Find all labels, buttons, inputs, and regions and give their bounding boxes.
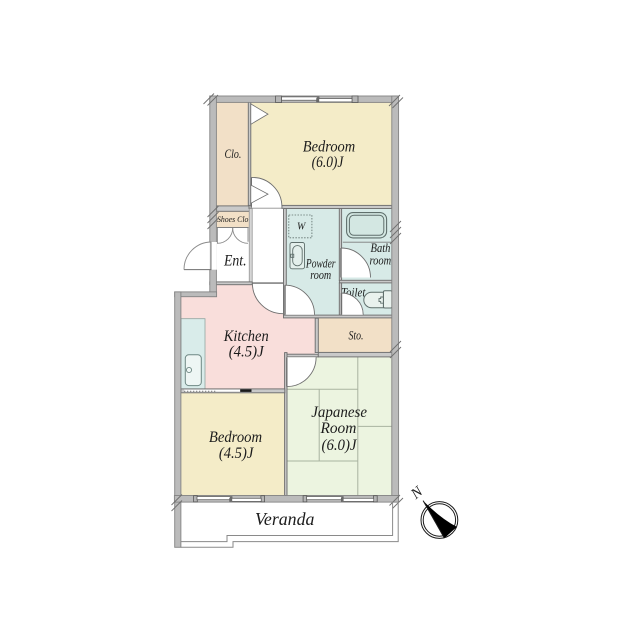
- svg-text:(6.0)J: (6.0)J: [322, 435, 358, 454]
- svg-text:room: room: [369, 254, 391, 268]
- svg-text:Clo.: Clo.: [224, 147, 241, 161]
- svg-text:(4.5)J: (4.5)J: [219, 443, 254, 462]
- svg-text:Ent.: Ent.: [223, 253, 246, 270]
- svg-text:(6.0)J: (6.0)J: [312, 152, 344, 171]
- svg-text:Sto.: Sto.: [349, 328, 364, 342]
- svg-text:N: N: [407, 483, 426, 503]
- svg-text:Room: Room: [320, 418, 357, 437]
- svg-text:Shoes Clo: Shoes Clo: [217, 215, 249, 224]
- svg-text:Veranda: Veranda: [255, 509, 314, 529]
- svg-text:(4.5)J: (4.5)J: [229, 342, 265, 361]
- svg-text:room: room: [310, 268, 331, 282]
